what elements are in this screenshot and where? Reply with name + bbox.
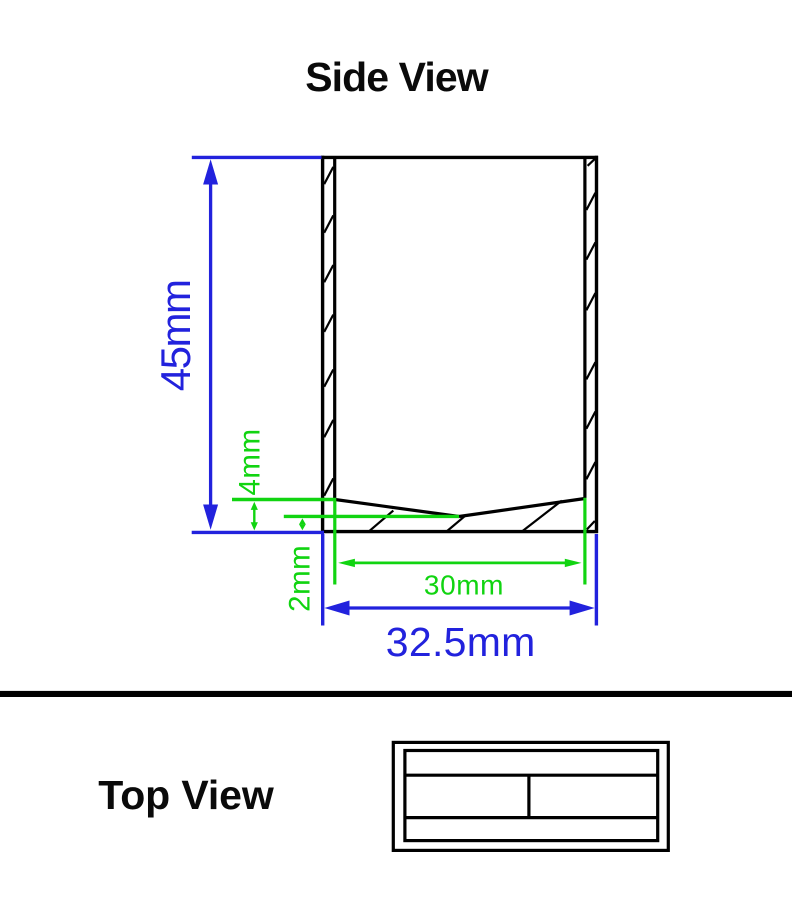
svg-text:4mm: 4mm (233, 428, 266, 495)
svg-text:30mm: 30mm (424, 569, 504, 600)
svg-text:2mm: 2mm (283, 545, 316, 612)
svg-text:Top View: Top View (98, 772, 274, 818)
svg-text:32.5mm: 32.5mm (386, 619, 536, 665)
svg-text:45mm: 45mm (152, 281, 199, 392)
svg-text:Side View: Side View (305, 54, 489, 100)
